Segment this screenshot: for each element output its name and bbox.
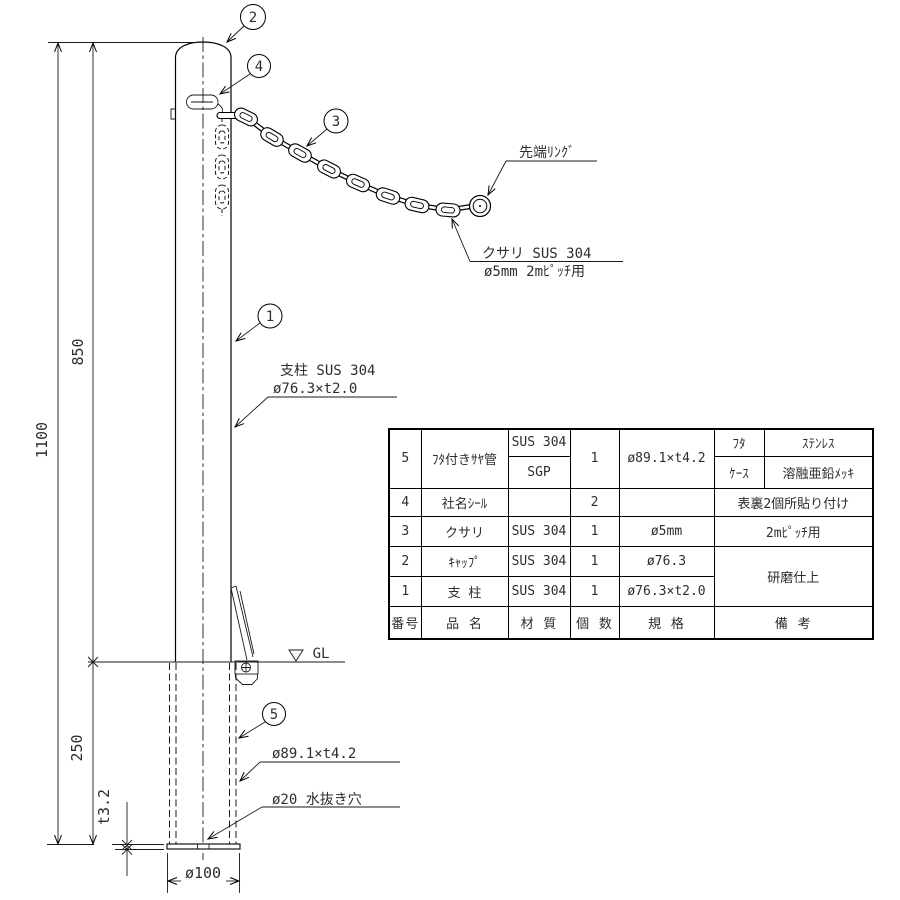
hidden-chain-links (216, 118, 229, 216)
cell-name-4: 社名ｼｰﾙ (421, 488, 508, 516)
cell-no-1: 1 (389, 576, 421, 606)
cell-remark-label-5b: ｹｰｽ (714, 456, 764, 488)
cell-qty-2: 1 (570, 546, 619, 576)
cell-remark-3: 2mﾋﾟｯﾁ用 (714, 516, 873, 546)
header-name: 品 名 (421, 606, 508, 639)
post-spec-callout: 支柱 SUS 304 ø76.3×t2.0 (235, 363, 397, 427)
header-qty: 個 数 (570, 606, 619, 639)
cell-remark-label-5a: ﾌﾀ (714, 429, 764, 456)
cell-name-1: 支 柱 (421, 576, 508, 606)
cell-no-5: 5 (389, 429, 421, 488)
cell-remark-value-5b: 溶融亜鉛ﾒｯｷ (764, 456, 873, 488)
cell-qty-1: 1 (570, 576, 619, 606)
header-remarks: 備 考 (714, 606, 873, 639)
dim-base-diameter: ø100 (185, 864, 221, 882)
post-outline (171, 42, 231, 662)
table-row: 5 ﾌﾀ付きｻﾔ管 SUS 304 1 ø89.1×t4.2 ﾌﾀ ｽﾃﾝﾚｽ (389, 429, 873, 456)
cell-material-3: SUS 304 (508, 516, 570, 546)
header-no: 番号 (389, 606, 421, 639)
cell-material-5a: SUS 304 (508, 429, 570, 456)
chain (217, 106, 491, 218)
cell-qty-4: 2 (570, 488, 619, 516)
base-plate (167, 844, 240, 849)
lid-latch (231, 586, 258, 685)
svg-text:3: 3 (332, 114, 340, 130)
cell-remark-value-5a: ｽﾃﾝﾚｽ (764, 429, 873, 456)
balloon-3: 3 (307, 109, 348, 146)
table-row: 2 ｷｬｯﾌﾟ SUS 304 1 ø76.3 研磨仕上 (389, 546, 873, 576)
table-row: 3 クサリ SUS 304 1 ø5mm 2mﾋﾟｯﾁ用 (389, 516, 873, 546)
ground-line (88, 650, 345, 662)
header-material: 材 質 (508, 606, 570, 639)
cell-material-1: SUS 304 (508, 576, 570, 606)
tip-ring (470, 196, 491, 217)
cell-spec-1: ø76.3×t2.0 (619, 576, 714, 606)
sleeve-spec-label: ø89.1×t4.2 (272, 746, 356, 762)
cell-material-2: SUS 304 (508, 546, 570, 576)
cell-name-2: ｷｬｯﾌﾟ (421, 546, 508, 576)
post-spec-line2: ø76.3×t2.0 (273, 381, 357, 397)
tip-ring-label: 先端ﾘﾝｸﾞ (519, 145, 575, 161)
drain-hole-label: ø20 水抜き穴 (272, 792, 362, 808)
cell-spec-3: ø5mm (619, 516, 714, 546)
dim-total-height: 1100 (33, 422, 51, 458)
cell-qty-5: 1 (570, 429, 619, 488)
dim-below-ground: 250 (68, 734, 86, 761)
header-spec: 規 格 (619, 606, 714, 639)
cell-material-5b: SGP (508, 456, 570, 488)
cell-no-2: 2 (389, 546, 421, 576)
cell-material-4 (508, 488, 570, 516)
cell-name-5: ﾌﾀ付きｻﾔ管 (421, 429, 508, 488)
svg-text:1: 1 (266, 309, 274, 325)
cell-spec-5: ø89.1×t4.2 (619, 429, 714, 488)
cell-spec-2: ø76.3 (619, 546, 714, 576)
balloon-1: 1 (236, 304, 282, 341)
cell-no-4: 4 (389, 488, 421, 516)
chain-spec-line2: ø5mm 2mﾋﾟｯﾁ用 (484, 264, 585, 280)
sleeve-spec-callout: ø89.1×t4.2 (240, 746, 400, 781)
drain-hole-callout: ø20 水抜き穴 (208, 792, 400, 839)
gl-triangle-marker (289, 650, 303, 661)
cell-no-3: 3 (389, 516, 421, 546)
svg-text:2: 2 (249, 10, 257, 26)
balloon-5: 5 (239, 703, 286, 739)
svg-text:5: 5 (270, 707, 278, 723)
dimension-lines (47, 43, 240, 894)
chain-spec-callout: クサリ SUS 304 ø5mm 2mﾋﾟｯﾁ用 (452, 219, 623, 280)
balloon-2: 2 (227, 5, 266, 43)
engineering-drawing-sheet: GL (0, 0, 900, 900)
parts-list-table: 5 ﾌﾀ付きｻﾔ管 SUS 304 1 ø89.1×t4.2 ﾌﾀ ｽﾃﾝﾚｽ … (388, 428, 874, 640)
cell-remark-4: 表裏2個所貼り付け (714, 488, 873, 516)
name-seal-slot (187, 95, 223, 112)
table-header-row: 番号 品 名 材 質 個 数 規 格 備 考 (389, 606, 873, 639)
tip-ring-callout: 先端ﾘﾝｸﾞ (488, 145, 597, 195)
cell-spec-4 (619, 488, 714, 516)
table-row: 4 社名ｼｰﾙ 2 表裏2個所貼り付け (389, 488, 873, 516)
cell-name-3: クサリ (421, 516, 508, 546)
post-spec-line1: 支柱 SUS 304 (280, 363, 375, 379)
dim-above-ground: 850 (69, 338, 87, 365)
cell-remark-finish: 研磨仕上 (714, 546, 873, 606)
cap-notch (171, 109, 176, 119)
cell-qty-3: 1 (570, 516, 619, 546)
gl-label: GL (313, 646, 330, 662)
dim-plate-thickness: t3.2 (95, 789, 113, 825)
chain-spec-line1: クサリ SUS 304 (482, 246, 591, 262)
balloon-4: 4 (220, 55, 271, 95)
svg-text:4: 4 (255, 59, 263, 75)
